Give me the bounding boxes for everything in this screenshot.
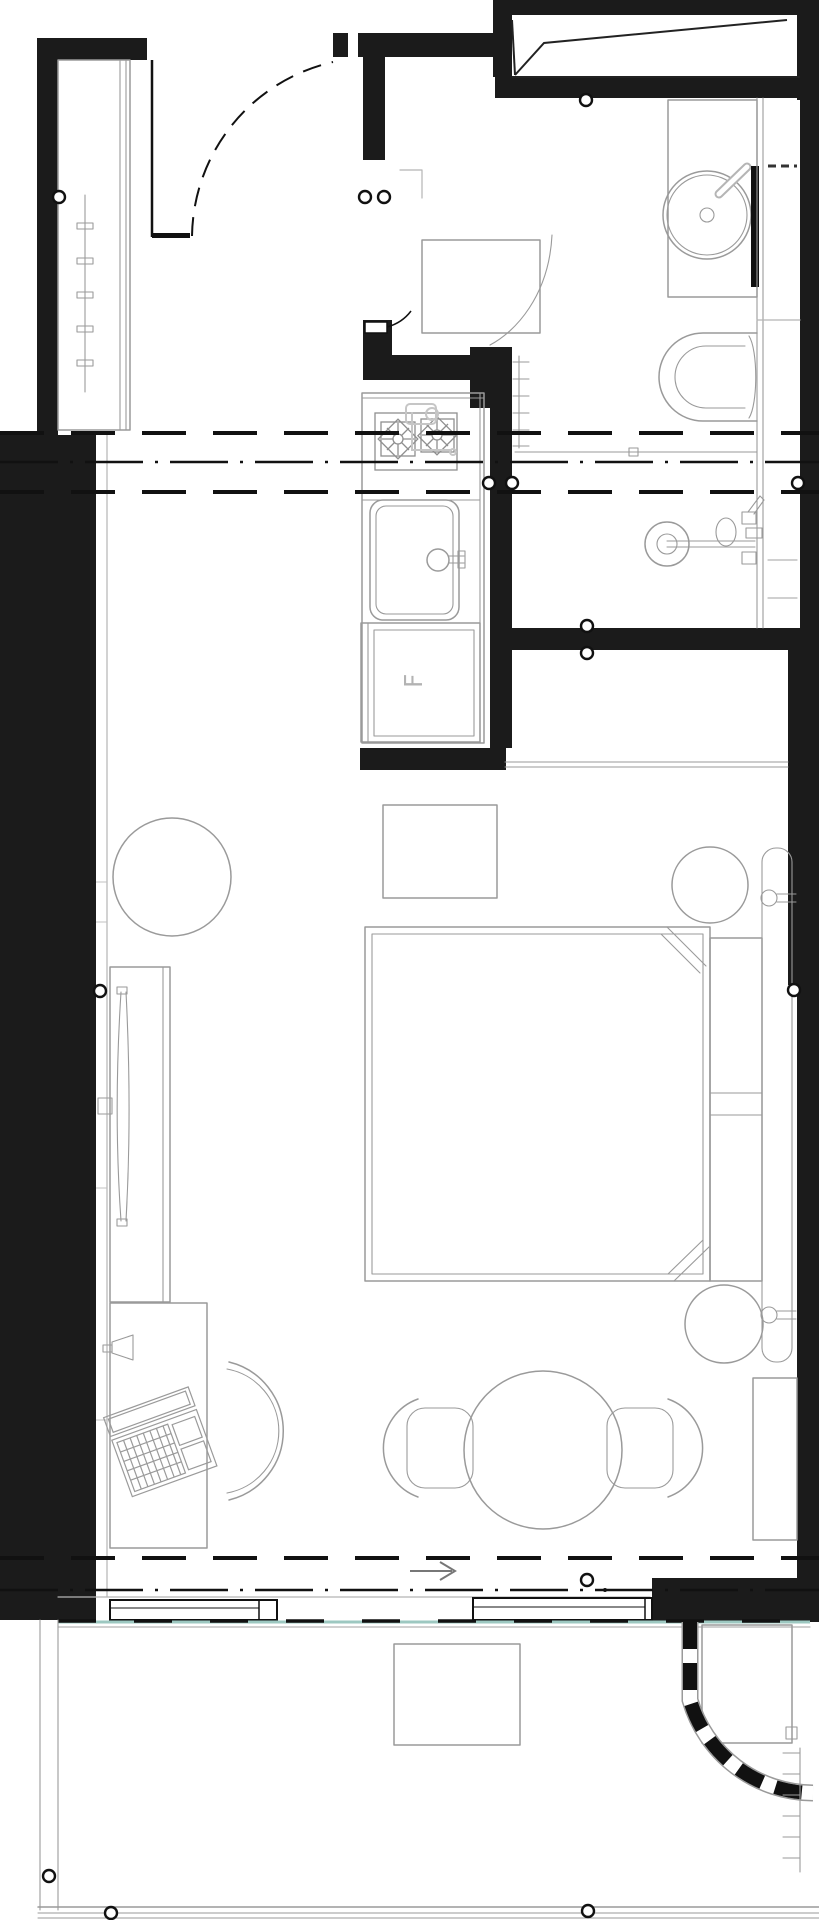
vessel-sink-inner [667,175,747,255]
walls [0,0,819,1622]
wall-kitchen-bottom-band [360,748,506,770]
bathroom-mirror [751,166,759,287]
wall-right-low [797,985,819,1622]
entry-door-swing-arc [192,62,333,236]
wall-entry-leg [363,33,385,168]
headboard-band [762,848,792,1362]
desk [103,1303,207,1548]
bed [365,927,762,1281]
desk-lamp [112,1335,133,1360]
vessel-sink-drain [700,208,714,222]
balcony-drain-ticks [783,1748,800,1872]
wall-cap-2 [348,33,358,57]
wall-top-band [493,0,819,15]
wall-kitchen-bath [490,347,512,748]
wall-bath-bottom-band [510,628,819,650]
entry-direction [410,1562,455,1580]
stool-top-right [672,847,748,923]
kitchen-counter [362,393,484,743]
louver-shaft [512,20,800,77]
fridge-label: F [399,674,428,688]
wall-louver-band [495,77,819,98]
wall-kitchen-top-band [363,355,512,380]
floor-plan-drawing: F [0,0,819,1920]
desk-chair [227,1362,283,1500]
laptop-trackpad [172,1416,202,1445]
stool-bottom-right [685,1285,763,1363]
toilet [659,333,757,421]
sliding-door-panel-right [473,1598,652,1620]
balcony-ac-unit [702,1625,797,1743]
kitchen-sink [370,500,465,620]
vessel-sink-outer [663,171,751,259]
floor-plan-page: F [0,0,819,1920]
entry-bench [422,240,540,333]
ottoman-square [383,805,497,898]
wall-lamp-bottom [761,1307,796,1323]
dining-chair-left [383,1399,473,1497]
wall-cap-1 [147,38,156,60]
wall-face-ticks [96,882,107,1420]
tv-console [98,967,170,1302]
pouf-left [113,818,231,936]
bedroom [96,435,797,1597]
wall-cap-3 [363,160,389,168]
tv-panel [117,992,129,1221]
wall-top-riser [493,0,512,77]
wall-right-mid [788,650,819,985]
louver-left-edge [512,20,515,75]
wall-right-top [797,0,819,100]
bed-pillows [710,938,762,1281]
entry-frame-line [400,170,422,198]
kitchen-hatch-leaf [365,322,387,333]
sliding-door-panel-left [110,1600,277,1620]
bathroom-door-swing [490,235,552,345]
entry-door-end [152,233,190,238]
balcony-table [394,1644,520,1745]
balcony [38,1597,819,1918]
bathroom [513,98,800,628]
kitchenette: F [361,393,484,743]
wall-left-upper [37,38,58,435]
louver-diagonal [515,20,787,75]
laptop [104,1387,217,1497]
wall-right-bathroom [800,98,819,650]
wardrobe-se [753,1378,797,1540]
curved-screen-wall [690,1622,813,1793]
wall-left-main [0,435,96,1620]
wall-bottom-right-block [652,1578,819,1622]
shower-mixer [645,496,764,566]
entry-closet [58,60,130,430]
dining-table [464,1371,622,1529]
fridge-cabinet: F [361,623,480,742]
